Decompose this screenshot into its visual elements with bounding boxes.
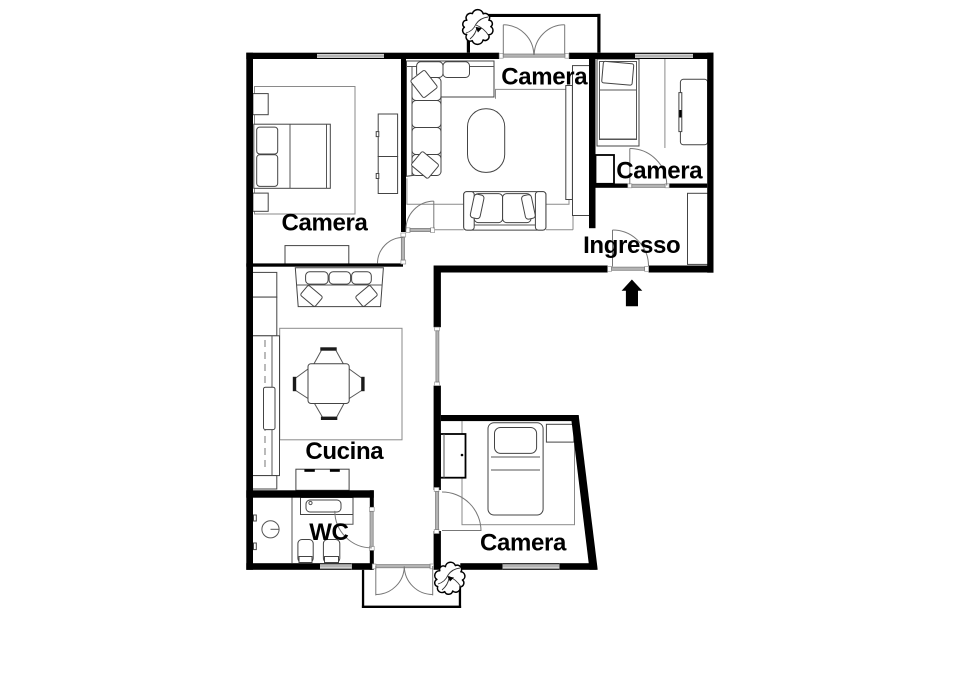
svg-text:Camera: Camera xyxy=(480,529,567,556)
svg-text:Camera: Camera xyxy=(616,157,703,184)
svg-text:Ingresso: Ingresso xyxy=(583,232,680,259)
svg-text:Camera: Camera xyxy=(501,63,588,90)
svg-text:WC: WC xyxy=(309,519,348,546)
svg-text:Cucina: Cucina xyxy=(305,438,384,465)
svg-text:Camera: Camera xyxy=(282,210,369,237)
